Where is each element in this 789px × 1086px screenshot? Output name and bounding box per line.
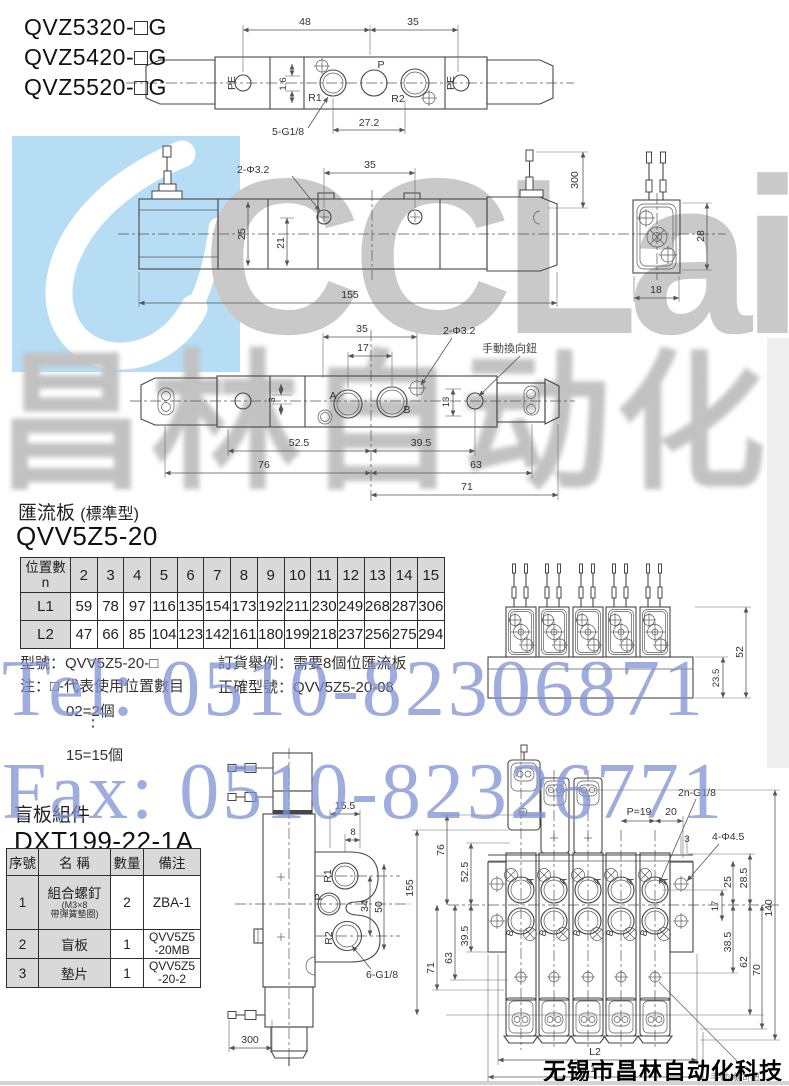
model-name: QVZ5520-□G	[24, 72, 167, 102]
port-label: PE	[445, 76, 457, 90]
dim-label: 35	[407, 16, 419, 28]
dim-label: 17	[710, 901, 721, 912]
table-header-row: 位置數 n 2 3 4 5 6 7 8 9 10 11 12 13 14 15	[21, 558, 445, 593]
dim-label: 39.5	[459, 926, 471, 947]
dim-label: 28.5	[738, 868, 750, 889]
dim-label: 48	[299, 16, 311, 28]
port-label: A	[591, 876, 604, 886]
dim-label: 52	[734, 646, 746, 658]
dim-label: 63	[443, 952, 455, 964]
table-row: 3 墊片 1 QVV5Z5 -20-2	[7, 959, 201, 988]
port-label: A	[557, 876, 570, 886]
model-name: QVZ5420-□G	[24, 42, 167, 72]
thread-label: 6-G1/8	[366, 969, 398, 981]
port-label: R2	[323, 931, 335, 945]
manifold-dimension-table: 位置數 n 2 3 4 5 6 7 8 9 10 11 12 13 14 15 …	[20, 557, 445, 649]
dim-label: 23.5	[711, 669, 722, 688]
watermark-fax: Fax: 0510-82326771	[2, 747, 725, 838]
port-label: A	[658, 876, 671, 886]
dim-label: 27.2	[359, 117, 380, 129]
port-label: B	[504, 928, 517, 938]
dim-label: 38.5	[722, 932, 734, 953]
dim-label: 71	[425, 962, 437, 974]
watermark-tel: Tel: 0510-82306871	[2, 644, 706, 735]
port-label: R1	[308, 92, 322, 104]
table-row: 1 組合螺釘 (M3×8 帶彈簧墊圈) 2 ZBA-1	[7, 876, 201, 930]
dim-label: 76	[435, 844, 447, 856]
table-row-L1: L1 59 78 97 116 135 154 173 192 211 230 …	[21, 593, 445, 621]
port-label: A	[524, 876, 537, 886]
port-label: R1	[322, 869, 334, 883]
dim-label: 52.5	[459, 862, 471, 883]
dim-label: 62	[738, 956, 750, 968]
table-row: 2 盲板 1 QVV5Z5 -20MB	[7, 930, 201, 959]
dim-label: 25	[722, 876, 734, 888]
header-cell: 位置數 n	[21, 558, 71, 593]
dim-label: 34	[359, 900, 371, 912]
dim-label: 155	[404, 879, 416, 897]
port-label: B	[604, 928, 617, 938]
dim-label: 140	[763, 899, 775, 917]
manifold-model: QVV5Z5-20	[16, 521, 158, 552]
port-label: P	[313, 893, 325, 900]
dim-label: 1.6	[278, 77, 289, 90]
watermark-cn-text: 昌林自动化	[0, 348, 771, 498]
dim-label: 70	[751, 964, 763, 976]
table-header-row: 序號 名 稱 數量 備注	[7, 849, 201, 876]
model-name: QVZ5320-□G	[24, 12, 167, 42]
port-label: PE	[226, 76, 238, 90]
port-label: A	[624, 876, 637, 886]
port-label: B	[571, 928, 584, 938]
port-label: R2	[391, 93, 405, 105]
drawing-top-view: PE R1 P R2 PE 48 35 1.6 5-G1/8 27.2	[126, 16, 574, 138]
watermark-logo-text: CCLair	[202, 146, 789, 368]
dim-label: 300	[241, 1034, 259, 1046]
scan-edge-bottom	[0, 1081, 789, 1085]
blind-plate-parts-table: 序號 名 稱 數量 備注 1 組合螺釘 (M3×8 帶彈簧墊圈) 2 ZBA-1…	[6, 848, 201, 988]
dim-label: 50	[373, 901, 385, 913]
port-label: P	[377, 59, 384, 71]
port-label: B	[638, 928, 651, 938]
model-list: QVZ5320-□G QVZ5420-□G QVZ5520-□G	[24, 12, 167, 102]
port-label: B	[537, 928, 550, 938]
